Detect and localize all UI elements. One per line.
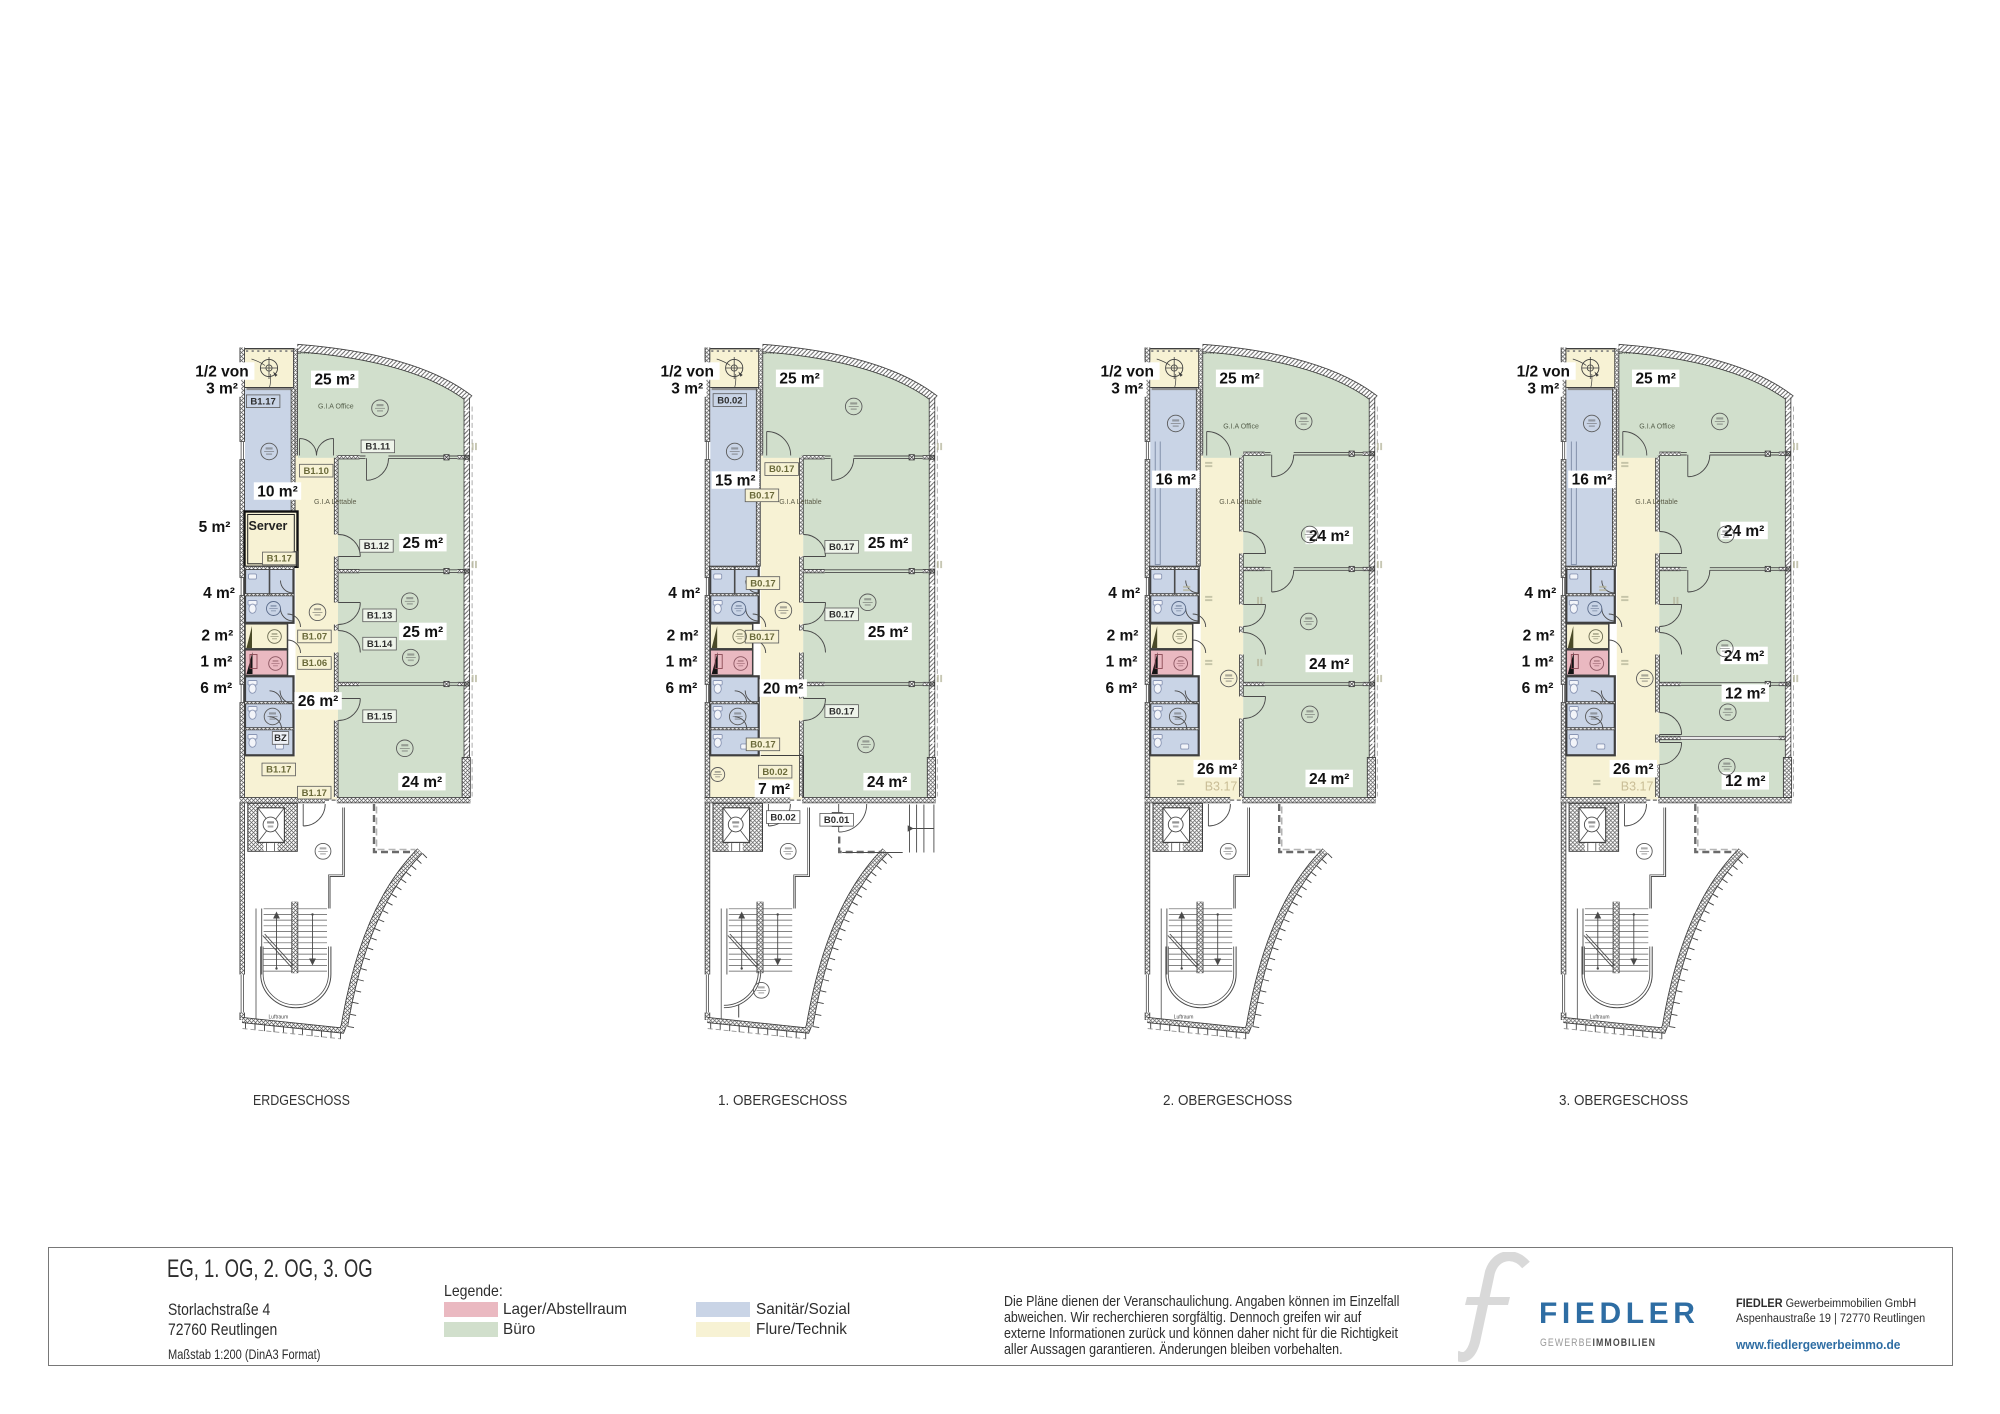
svg-text:7 m²: 7 m² (758, 781, 790, 798)
svg-text:24 m²: 24 m² (1309, 771, 1350, 788)
svg-text:25 m²: 25 m² (868, 624, 909, 641)
svg-text:B0.17: B0.17 (750, 740, 775, 751)
svg-text:B1.06: B1.06 (302, 658, 327, 669)
svg-text:B1.15: B1.15 (367, 712, 393, 723)
svg-text:B3.17: B3.17 (1205, 780, 1238, 794)
svg-text:4 m²: 4 m² (668, 585, 700, 602)
svg-text:25 m²: 25 m² (779, 371, 820, 388)
svg-text:B1.11: B1.11 (365, 442, 391, 453)
svg-text:B1.17: B1.17 (302, 788, 327, 799)
svg-text:6 m²: 6 m² (200, 680, 232, 697)
svg-text:3 m²: 3 m² (1527, 380, 1559, 397)
svg-text:B1.17: B1.17 (250, 397, 275, 408)
svg-text:B1.07: B1.07 (302, 632, 327, 643)
svg-text:25 m²: 25 m² (868, 535, 909, 552)
svg-text:G.I.A Lettable: G.I.A Lettable (1635, 499, 1678, 506)
svg-text:BZ: BZ (274, 733, 287, 744)
svg-text:20 m²: 20 m² (763, 680, 804, 697)
svg-text:B0.17: B0.17 (829, 706, 854, 717)
svg-text:4 m²: 4 m² (1108, 585, 1140, 602)
svg-text:B0.17: B0.17 (749, 491, 774, 502)
svg-text:G.I.A Lettable: G.I.A Lettable (314, 499, 357, 506)
svg-text:G.I.A Office: G.I.A Office (318, 404, 354, 411)
svg-text:4 m²: 4 m² (1524, 585, 1556, 602)
svg-text:5 m²: 5 m² (199, 519, 231, 536)
svg-text:B1.14: B1.14 (367, 639, 393, 650)
svg-text:26 m²: 26 m² (1197, 761, 1238, 778)
svg-text:12 m²: 12 m² (1725, 685, 1766, 702)
svg-text:26 m²: 26 m² (1613, 761, 1654, 778)
svg-text:25 m²: 25 m² (403, 535, 444, 552)
svg-text:Luftraum: Luftraum (269, 1015, 289, 1021)
svg-text:B0.17: B0.17 (750, 578, 775, 589)
svg-text:B1.17: B1.17 (267, 554, 292, 565)
svg-text:24 m²: 24 m² (1309, 656, 1350, 673)
svg-text:3 m²: 3 m² (1111, 380, 1143, 397)
svg-text:12 m²: 12 m² (1725, 773, 1766, 790)
svg-text:25 m²: 25 m² (1219, 371, 1260, 388)
svg-text:B1.10: B1.10 (304, 466, 329, 477)
svg-text:1/2 von: 1/2 von (1517, 363, 1570, 380)
svg-text:B0.02: B0.02 (770, 812, 795, 823)
svg-text:6 m²: 6 m² (665, 680, 697, 697)
svg-text:B1.12: B1.12 (364, 541, 389, 552)
svg-text:G.I.A Lettable: G.I.A Lettable (1219, 499, 1262, 506)
svg-text:1/2 von: 1/2 von (195, 363, 248, 380)
svg-text:Server: Server (249, 519, 288, 533)
svg-text:B1.13: B1.13 (367, 611, 392, 622)
svg-text:1 m²: 1 m² (1106, 654, 1138, 671)
svg-text:16 m²: 16 m² (1572, 472, 1613, 489)
svg-text:15 m²: 15 m² (715, 472, 756, 489)
svg-text:B0.02: B0.02 (762, 767, 787, 778)
svg-text:24 m²: 24 m² (867, 774, 908, 791)
svg-text:24 m²: 24 m² (1724, 523, 1765, 540)
svg-text:4 m²: 4 m² (203, 585, 235, 602)
svg-text:B0.17: B0.17 (769, 464, 794, 475)
svg-text:B0.17: B0.17 (749, 632, 774, 643)
svg-text:B1.17: B1.17 (266, 765, 291, 776)
svg-text:G.I.A Office: G.I.A Office (1639, 424, 1675, 431)
svg-text:2 m²: 2 m² (201, 627, 233, 644)
svg-text:24 m²: 24 m² (402, 774, 443, 791)
svg-text:B0.17: B0.17 (829, 610, 854, 621)
svg-text:1 m²: 1 m² (200, 654, 232, 671)
svg-text:6 m²: 6 m² (1105, 680, 1137, 697)
svg-text:B0.17: B0.17 (829, 542, 854, 553)
svg-text:26 m²: 26 m² (298, 693, 339, 710)
svg-text:1 m²: 1 m² (1522, 654, 1554, 671)
svg-text:1 m²: 1 m² (666, 654, 698, 671)
svg-text:2 m²: 2 m² (1523, 627, 1555, 644)
svg-text:24 m²: 24 m² (1724, 648, 1765, 665)
svg-text:1/2 von: 1/2 von (1100, 363, 1153, 380)
svg-text:6 m²: 6 m² (1522, 680, 1554, 697)
svg-text:2 m²: 2 m² (667, 627, 699, 644)
svg-text:B3.17: B3.17 (1621, 780, 1654, 794)
svg-text:25 m²: 25 m² (314, 372, 355, 389)
svg-text:Luftraum: Luftraum (1174, 1015, 1194, 1021)
svg-text:B0.02: B0.02 (717, 395, 742, 406)
svg-text:B0.01: B0.01 (824, 815, 850, 826)
svg-text:25 m²: 25 m² (1635, 371, 1676, 388)
svg-text:3 m²: 3 m² (206, 380, 238, 397)
svg-text:G.I.A Office: G.I.A Office (1223, 424, 1259, 431)
svg-text:2 m²: 2 m² (1107, 627, 1139, 644)
svg-text:G.I.A Lettable: G.I.A Lettable (779, 499, 822, 506)
svg-text:1/2 von: 1/2 von (660, 363, 713, 380)
svg-text:25 m²: 25 m² (403, 624, 444, 641)
svg-text:16 m²: 16 m² (1156, 472, 1197, 489)
svg-text:Luftraum: Luftraum (1590, 1015, 1610, 1021)
svg-text:10 m²: 10 m² (257, 483, 298, 500)
svg-text:3 m²: 3 m² (671, 380, 703, 397)
svg-text:24 m²: 24 m² (1309, 528, 1350, 545)
